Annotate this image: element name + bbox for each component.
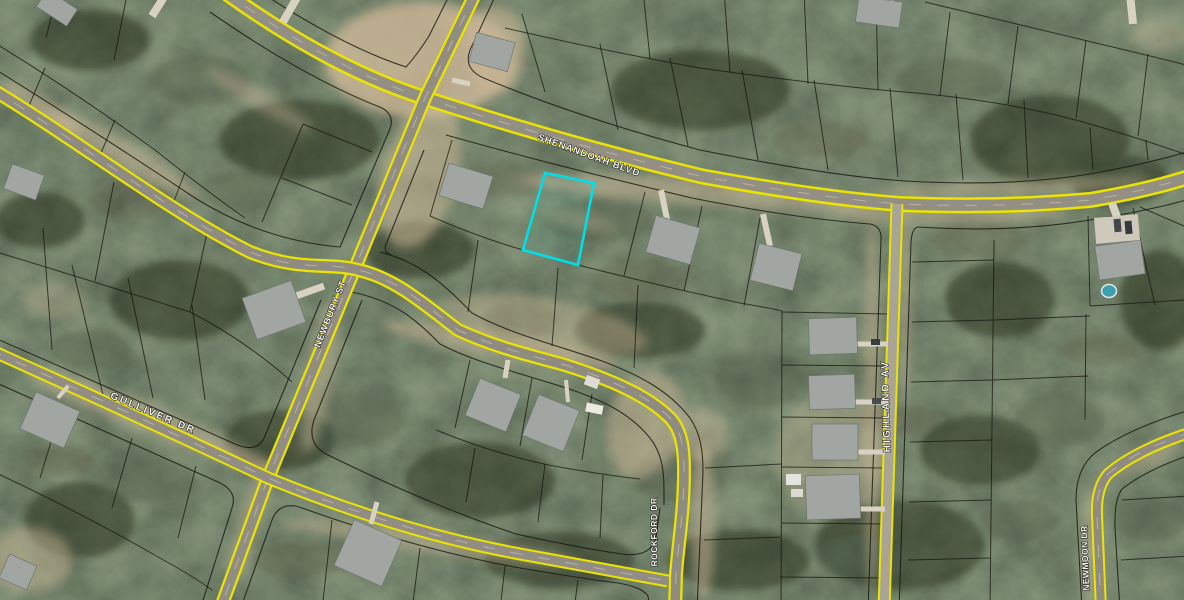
building [808, 317, 857, 355]
building [812, 424, 858, 460]
map-viewport[interactable]: SHENANDOAH BLVD NEWBURY ST GULLIVER DR H… [0, 0, 1184, 600]
car [1124, 221, 1132, 235]
aerial-map[interactable]: SHENANDOAH BLVD NEWBURY ST GULLIVER DR H… [0, 0, 1184, 600]
car [871, 339, 880, 345]
swimming-pool [1102, 285, 1117, 298]
street-label-rockford-dr: ROCKFORD DR [649, 497, 660, 566]
building [805, 474, 861, 520]
car [872, 398, 881, 404]
car [1113, 219, 1121, 233]
building [808, 374, 855, 410]
shed [786, 474, 801, 485]
shed [791, 489, 803, 497]
building [1095, 240, 1145, 280]
